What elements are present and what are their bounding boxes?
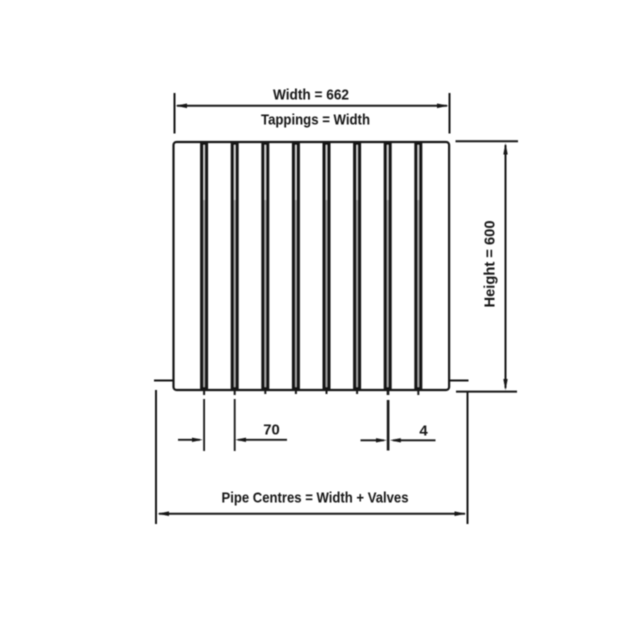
- svg-text:4: 4: [419, 422, 428, 439]
- svg-text:Pipe Centres = Width + Valves: Pipe Centres = Width + Valves: [222, 490, 409, 507]
- svg-text:Width = 662: Width = 662: [273, 87, 349, 104]
- svg-text:Tappings = Width: Tappings = Width: [261, 111, 370, 128]
- svg-text:70: 70: [263, 421, 280, 438]
- svg-text:Height = 600: Height = 600: [482, 221, 499, 308]
